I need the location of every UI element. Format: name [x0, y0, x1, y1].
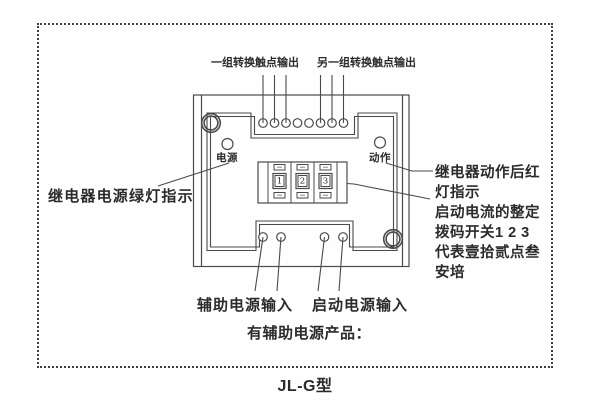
action-led-icon [375, 137, 386, 148]
dip-switch-3-digit: 3 [323, 177, 328, 187]
dip-switch-1-digit: 1 [277, 177, 282, 187]
right-annotation-line: 拨码开关1 2 3 [435, 223, 540, 243]
label-aux-power-input: 辅助电源输入 [197, 294, 293, 315]
right-annotation-line: 灯指示 [435, 183, 540, 203]
dip-switch-2: 2 [296, 165, 309, 199]
right-annotation-line: 代表壹拾贰点叁 [435, 243, 540, 263]
bottom-terminal-row [259, 233, 348, 242]
relay-diagram-page: 1 2 3 [0, 0, 600, 400]
label-start-power-input: 启动电源输入 [312, 294, 408, 315]
label-action-led: 动作 [369, 150, 391, 165]
dip-switch-2-digit: 2 [300, 177, 305, 187]
label-green-led-annotation: 继电器电源绿灯指示 [48, 185, 194, 206]
dip-switch-1: 1 [273, 165, 286, 199]
dip-switch-3: 3 [319, 165, 332, 199]
right-annotation-line: 安培 [435, 263, 540, 283]
figure-caption: JL-G型 [225, 372, 385, 396]
label-contact-group-1: 一组转换触点输出 [211, 54, 299, 70]
power-led-icon [222, 139, 233, 150]
right-annotation-block: 继电器动作后红 灯指示 启动电流的整定 拨码开关1 2 3 代表壹拾贰点叁 安培 [435, 163, 540, 283]
dip-switch-leader [347, 184, 430, 200]
right-annotation-line: 继电器动作后红 [435, 163, 540, 183]
dip-switch-block: 1 2 3 [258, 162, 347, 203]
top-terminal-row [259, 119, 348, 128]
right-annotation-line: 启动电流的整定 [435, 203, 540, 223]
label-contact-group-2: 另一组转换触点输出 [317, 54, 416, 70]
label-aux-power-note: 有辅助电源产品： [247, 322, 371, 343]
label-power-led: 电源 [216, 150, 238, 165]
